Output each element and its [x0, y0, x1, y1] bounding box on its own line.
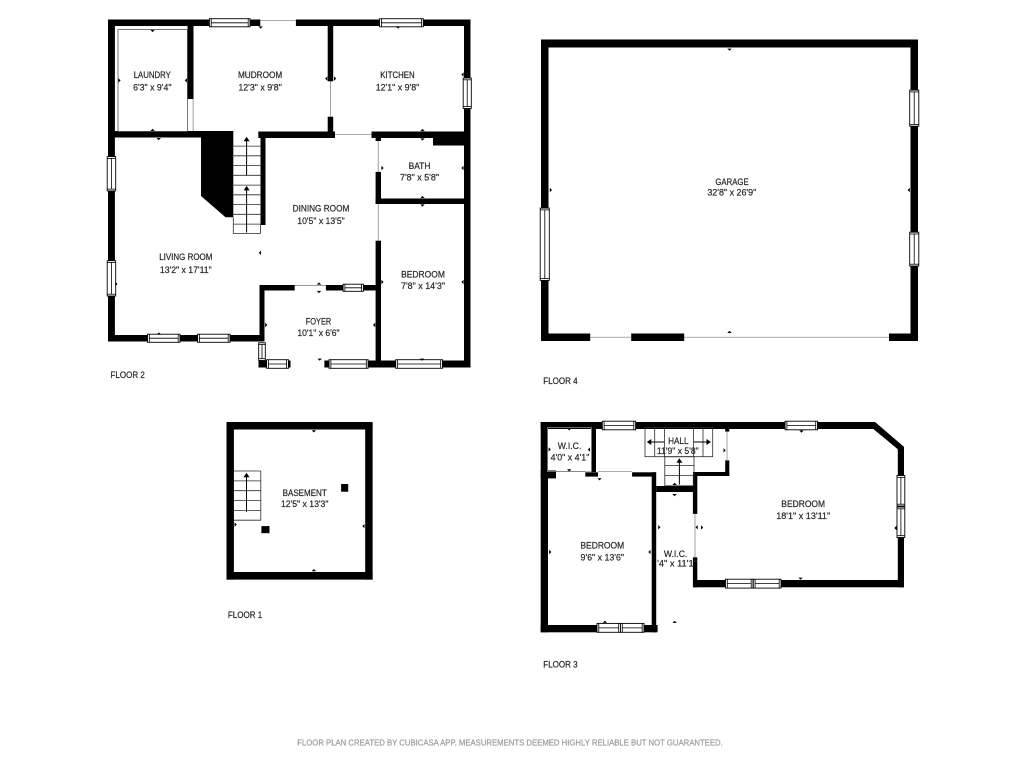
svg-text:FOYER: FOYER: [306, 317, 332, 328]
svg-text:BEDROOM: BEDROOM: [781, 499, 825, 510]
svg-text:FLOOR PLAN CREATED BY CUBICASA: FLOOR PLAN CREATED BY CUBICASA APP. MEAS…: [297, 737, 723, 747]
svg-text:12'5" x 13'3": 12'5" x 13'3": [281, 499, 329, 510]
svg-text:'4" x 11'1": '4" x 11'1": [657, 559, 697, 570]
svg-text:BASEMENT: BASEMENT: [283, 488, 327, 499]
svg-text:W.I.C.: W.I.C.: [558, 441, 582, 452]
svg-text:10'1" x 6'6": 10'1" x 6'6": [297, 328, 339, 339]
svg-text:FLOOR 4: FLOOR 4: [543, 376, 578, 387]
svg-text:FLOOR 3: FLOOR 3: [543, 660, 577, 671]
svg-text:FLOOR 2: FLOOR 2: [111, 370, 145, 381]
svg-text:7'8" x 14'3": 7'8" x 14'3": [401, 281, 445, 292]
svg-text:11'9" x 5'8": 11'9" x 5'8": [657, 446, 699, 457]
svg-text:LAUNDRY: LAUNDRY: [134, 70, 172, 81]
svg-text:BEDROOM: BEDROOM: [401, 269, 445, 280]
svg-text:9'6" x 13'6": 9'6" x 13'6": [581, 553, 625, 564]
svg-text:LIVING ROOM: LIVING ROOM: [159, 252, 212, 263]
svg-text:18'1" x 13'11": 18'1" x 13'11": [776, 511, 830, 522]
svg-text:DINING ROOM: DINING ROOM: [293, 204, 350, 215]
svg-text:BEDROOM: BEDROOM: [580, 540, 624, 551]
svg-text:12'1" x 9'8": 12'1" x 9'8": [376, 83, 420, 94]
svg-text:12'3" x 9'8": 12'3" x 9'8": [238, 83, 282, 94]
svg-text:MUDROOM: MUDROOM: [238, 70, 282, 81]
svg-text:6'3" x 9'4": 6'3" x 9'4": [133, 83, 171, 94]
svg-text:10'5" x 13'5": 10'5" x 13'5": [297, 216, 344, 227]
svg-text:7'8" x 5'8": 7'8" x 5'8": [400, 173, 439, 184]
svg-text:32'8" x 26'9": 32'8" x 26'9": [707, 188, 756, 199]
svg-text:KITCHEN: KITCHEN: [380, 70, 414, 81]
svg-text:BATH: BATH: [409, 161, 431, 172]
svg-text:FLOOR 1: FLOOR 1: [228, 610, 262, 621]
svg-text:13'2" x 17'11": 13'2" x 17'11": [160, 265, 212, 276]
svg-text:4'0" x 4'1": 4'0" x 4'1": [551, 453, 590, 464]
